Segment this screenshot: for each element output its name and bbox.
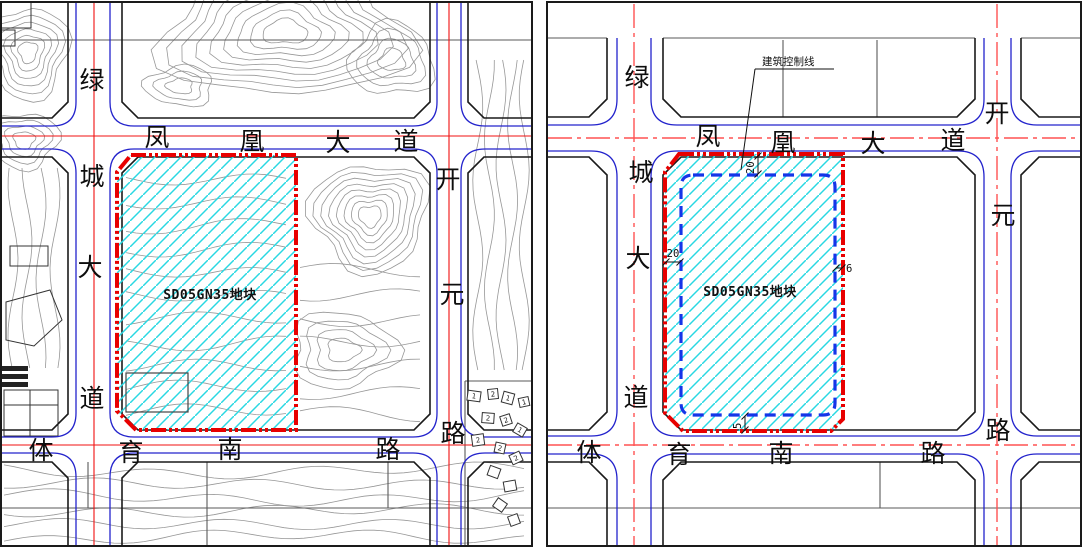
contour-line — [22, 168, 32, 368]
road-name-char: 南 — [768, 439, 793, 468]
dimension-label: 20 — [745, 161, 757, 174]
road-edge-line — [548, 462, 607, 546]
parcel-label: SD05GN35地块 — [703, 284, 797, 300]
road-name-char: 道 — [393, 127, 418, 156]
contour-line — [300, 264, 420, 277]
contour-line — [8, 168, 18, 368]
contour-line — [167, 0, 409, 88]
village-house: 2 — [471, 434, 484, 447]
road-curb-line — [651, 38, 984, 125]
road-curb-line — [1, 453, 76, 546]
contour-line — [196, 0, 378, 74]
road-edge-line — [1, 157, 68, 430]
road-name-char: 城 — [79, 162, 104, 191]
contour-line — [484, 60, 494, 370]
building-layer — [1, 2, 62, 436]
contour-line — [377, 48, 405, 71]
building-outline — [1, 2, 31, 28]
control-line-label: 建筑控制线 — [762, 55, 815, 68]
contour-line — [300, 407, 420, 422]
house-story-number: 2 — [490, 390, 495, 398]
building-outline — [1, 30, 15, 46]
village-house: 2 — [500, 414, 513, 427]
road-name-char: 育 — [666, 440, 691, 469]
house-story-number: 2 — [485, 414, 490, 422]
road-name-char: 路 — [920, 439, 945, 468]
road-name-char: 道 — [940, 126, 965, 155]
road-name-char: 大 — [77, 253, 102, 282]
contour-line — [13, 132, 36, 150]
contour-line — [0, 15, 66, 94]
village-house: 1 — [467, 390, 481, 402]
contour-line — [519, 60, 529, 370]
road-name-char: 道 — [79, 384, 104, 413]
contour-line — [18, 42, 38, 64]
road-curb-line — [110, 2, 437, 126]
contour-line — [251, 10, 322, 49]
road-name-char: 南 — [217, 435, 242, 464]
road-name-char: 大 — [860, 129, 885, 158]
contour-line — [4, 504, 524, 517]
contour-line — [321, 178, 416, 264]
contour-line — [367, 38, 416, 78]
road-name-char: 体 — [576, 438, 601, 467]
road-name-char: 育 — [118, 438, 143, 467]
village-house — [487, 465, 501, 478]
road-name-char: 大 — [325, 128, 350, 157]
planning-map-screenshot: SD05GN35地块凤凰大道绿城大道开元路体育南路1211221222 SD05… — [0, 0, 1084, 550]
dimension-label: 20 — [667, 248, 680, 260]
contour-line — [36, 168, 46, 368]
contour-line — [165, 78, 193, 94]
road-name-char: 体 — [28, 436, 53, 465]
road-name-char: 开 — [435, 165, 460, 194]
contour-line — [300, 387, 420, 400]
contour-line — [0, 22, 59, 86]
contour-line — [300, 289, 420, 301]
house-footprint — [493, 498, 508, 513]
contour-line — [5, 126, 45, 157]
building-outline — [4, 390, 58, 436]
road-name-char: 绿 — [624, 63, 649, 92]
road-name-char: 凰 — [770, 128, 795, 157]
contour-line — [313, 172, 423, 270]
contour-line — [4, 489, 524, 506]
contour-line — [0, 8, 72, 102]
contour-line — [263, 18, 308, 43]
contour-line — [153, 71, 202, 100]
house-footprint — [503, 480, 517, 492]
village-house — [503, 480, 517, 492]
road-name-char: 元 — [990, 201, 1015, 230]
road-curb-line — [461, 453, 532, 546]
road-edge-line — [1021, 462, 1081, 546]
site-survey-panel: SD05GN35地块凤凰大道绿城大道开元路体育南路1211221222 — [0, 0, 532, 546]
village-house: 2 — [482, 413, 495, 424]
contour-line — [224, 0, 350, 62]
contour-line — [496, 60, 506, 370]
contour-line — [295, 312, 405, 389]
contour-line — [50, 168, 60, 368]
parcel-label: SD05GN35地块 — [163, 287, 257, 303]
road-name-char: 凰 — [239, 127, 264, 156]
contour-line — [317, 330, 377, 371]
road-edge-line — [1021, 157, 1081, 430]
building-bar — [2, 366, 28, 371]
zoning-map-canvas: SD05GN35地块凤凰大道绿城大道开元路体育南路1211221222 SD05… — [0, 0, 1084, 550]
road-name-char: 路 — [375, 435, 400, 464]
road-name-char: 凤 — [144, 123, 169, 152]
road-name-char: 路 — [985, 416, 1010, 445]
building-bar — [2, 374, 28, 379]
village-layer: 1211221222 — [467, 389, 530, 527]
road-edge-line — [468, 2, 532, 118]
road-name-char: 城 — [628, 158, 653, 187]
road-edge-line — [663, 462, 975, 546]
village-house — [493, 498, 508, 513]
contour-line — [11, 35, 45, 71]
road-name-char: 开 — [984, 99, 1009, 128]
control-line-panel: SD05GN35地块凤凰大道绿城大道开元路体育南路202065建筑控制线 — [547, 2, 1081, 546]
village-house: 2 — [488, 389, 499, 400]
village-house: 1 — [513, 423, 528, 437]
road-edge-line — [1, 462, 68, 546]
building-bar — [2, 382, 28, 387]
contour-line — [141, 64, 211, 107]
contour-line — [473, 60, 483, 370]
road-name-char: 凤 — [695, 122, 720, 151]
road-name-char: 大 — [625, 244, 650, 273]
road-name-char: 元 — [439, 280, 464, 309]
road-name-char: 路 — [440, 419, 465, 448]
house-footprint — [487, 465, 501, 478]
road-edge-line — [1021, 38, 1081, 117]
contour-line — [4, 478, 524, 490]
village-house: 1 — [518, 397, 530, 408]
village-house: 1 — [501, 391, 514, 404]
road-name-char: 绿 — [79, 66, 104, 95]
village-house: 2 — [494, 442, 506, 454]
road-name-char: 道 — [623, 383, 648, 412]
road-edge-line — [548, 157, 607, 430]
dimension-label: 6 — [846, 263, 852, 275]
building-outline — [10, 246, 48, 266]
road-edge-line — [663, 38, 975, 117]
contour-line — [4, 462, 524, 479]
dimension-label: 5 — [732, 423, 744, 429]
contour-line — [4, 519, 524, 530]
building-outline — [6, 290, 62, 346]
contour-line — [4, 530, 524, 543]
road-edge-line — [548, 38, 607, 117]
contour-line — [359, 206, 382, 229]
contour-line — [328, 338, 362, 362]
contour-line — [300, 315, 420, 327]
road-curb-line — [461, 2, 532, 126]
contour-line — [508, 60, 518, 370]
